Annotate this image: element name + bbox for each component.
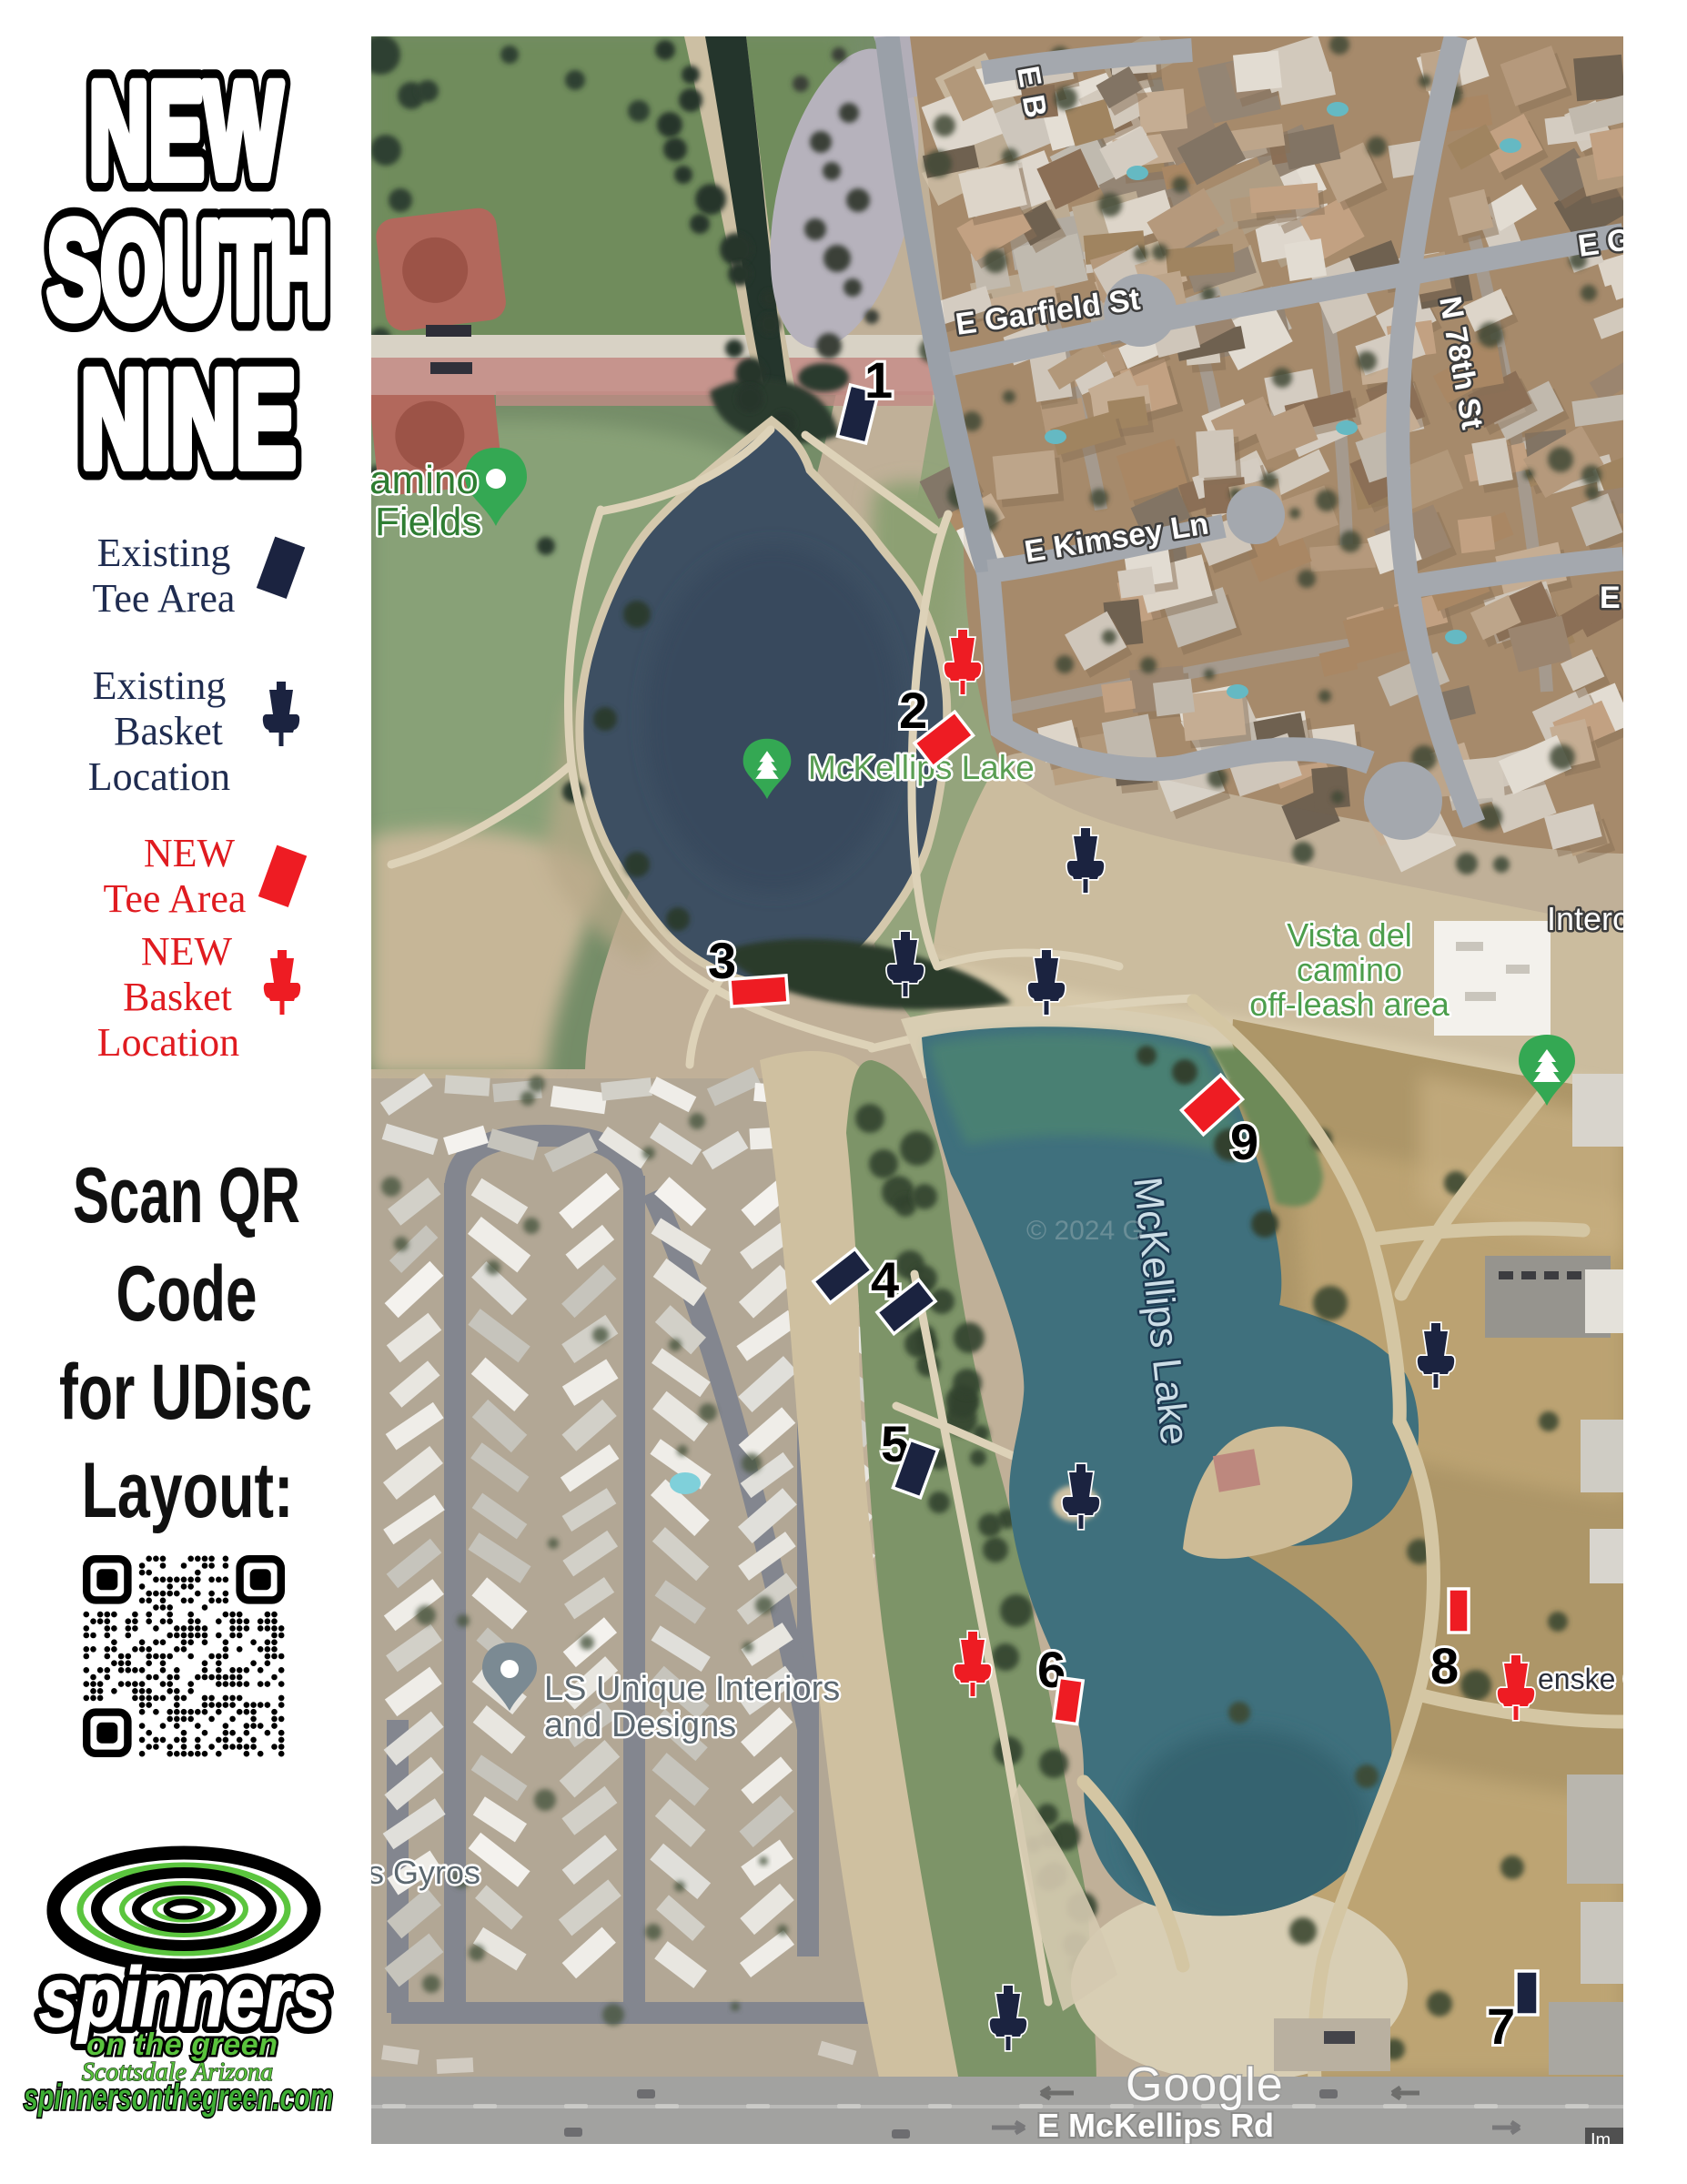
svg-text:camino: camino: [1297, 951, 1402, 988]
svg-text:Existing: Existing: [93, 663, 227, 708]
svg-text:spinnersonthegreen.com: spinnersonthegreen.com: [24, 2078, 333, 2118]
svg-text:8: 8: [1430, 1637, 1459, 1694]
svg-text:Google: Google: [1126, 2058, 1284, 2111]
svg-text:and Designs: and Designs: [544, 1706, 736, 1744]
svg-text:Fields: Fields: [375, 500, 481, 544]
svg-text:Code: Code: [116, 1250, 258, 1338]
svg-text:LS Unique Interiors: LS Unique Interiors: [544, 1670, 840, 1708]
svg-text:Existing: Existing: [97, 531, 231, 575]
svg-text:amino: amino: [369, 458, 479, 502]
svg-text:Vista del: Vista del: [1287, 916, 1411, 954]
svg-text:McKellips Lake: McKellips Lake: [808, 749, 1035, 786]
svg-text:E McKellips Rd: E McKellips Rd: [1037, 2107, 1274, 2144]
svg-text:NEW: NEW: [144, 831, 236, 875]
svg-text:Scan QR: Scan QR: [73, 1152, 300, 1239]
svg-text:2: 2: [899, 682, 927, 739]
svg-text:Tee Area: Tee Area: [93, 576, 236, 621]
svg-text:E: E: [1600, 581, 1621, 615]
svg-text:SOUTH: SOUTH: [47, 193, 328, 346]
svg-text:9: 9: [1230, 1113, 1258, 1170]
svg-text:© 2024 G: © 2024 G: [1026, 1216, 1144, 1246]
svg-text:Location: Location: [88, 754, 230, 799]
svg-text:Layout:: Layout:: [82, 1447, 294, 1534]
svg-text:Basket: Basket: [123, 975, 232, 1019]
svg-text:Interc: Interc: [1547, 900, 1629, 937]
svg-text:Location: Location: [97, 1020, 239, 1065]
svg-text:NEW: NEW: [89, 54, 282, 207]
svg-text:3: 3: [708, 932, 736, 989]
svg-text:s Gyros: s Gyros: [368, 1854, 480, 1891]
svg-text:NINE: NINE: [81, 342, 296, 495]
svg-text:7: 7: [1487, 1997, 1515, 2055]
svg-text:Tee Area: Tee Area: [104, 876, 247, 921]
svg-text:off-leash area: off-leash area: [1249, 986, 1450, 1023]
svg-text:1: 1: [864, 351, 893, 409]
svg-text:Basket: Basket: [114, 709, 223, 753]
svg-text:for UDisc: for UDisc: [59, 1349, 312, 1436]
svg-text:on the green: on the green: [86, 2027, 278, 2062]
svg-text:NEW: NEW: [141, 929, 233, 974]
